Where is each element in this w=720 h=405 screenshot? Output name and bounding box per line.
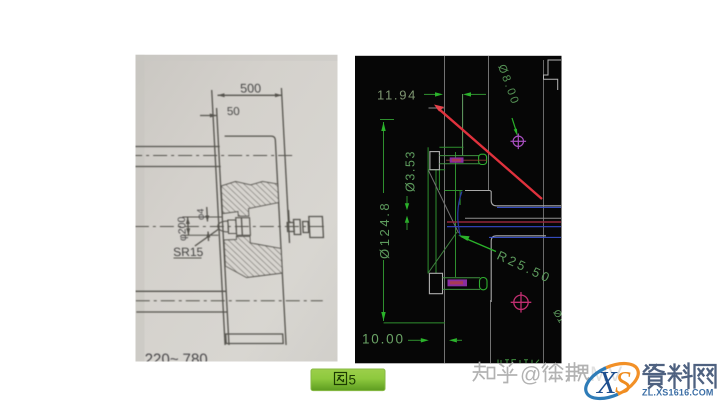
svg-text:φ200: φ200 bbox=[176, 217, 189, 241]
svg-text:5: 5 bbox=[349, 373, 357, 388]
svg-text:φ4: φ4 bbox=[195, 209, 207, 220]
svg-text:50: 50 bbox=[227, 106, 240, 118]
svg-text:ZL.XS1616.COM: ZL.XS1616.COM bbox=[642, 388, 714, 398]
svg-text:@: @ bbox=[520, 364, 541, 387]
svg-text:S: S bbox=[615, 364, 631, 400]
svg-text:Ø3.53: Ø3.53 bbox=[404, 150, 418, 192]
svg-text:500: 500 bbox=[240, 82, 262, 96]
svg-text:10.00: 10.00 bbox=[362, 332, 405, 347]
svg-text:11.94: 11.94 bbox=[377, 88, 417, 103]
svg-text:Ø124.8: Ø124.8 bbox=[377, 201, 392, 259]
svg-text:SR15: SR15 bbox=[173, 245, 204, 259]
